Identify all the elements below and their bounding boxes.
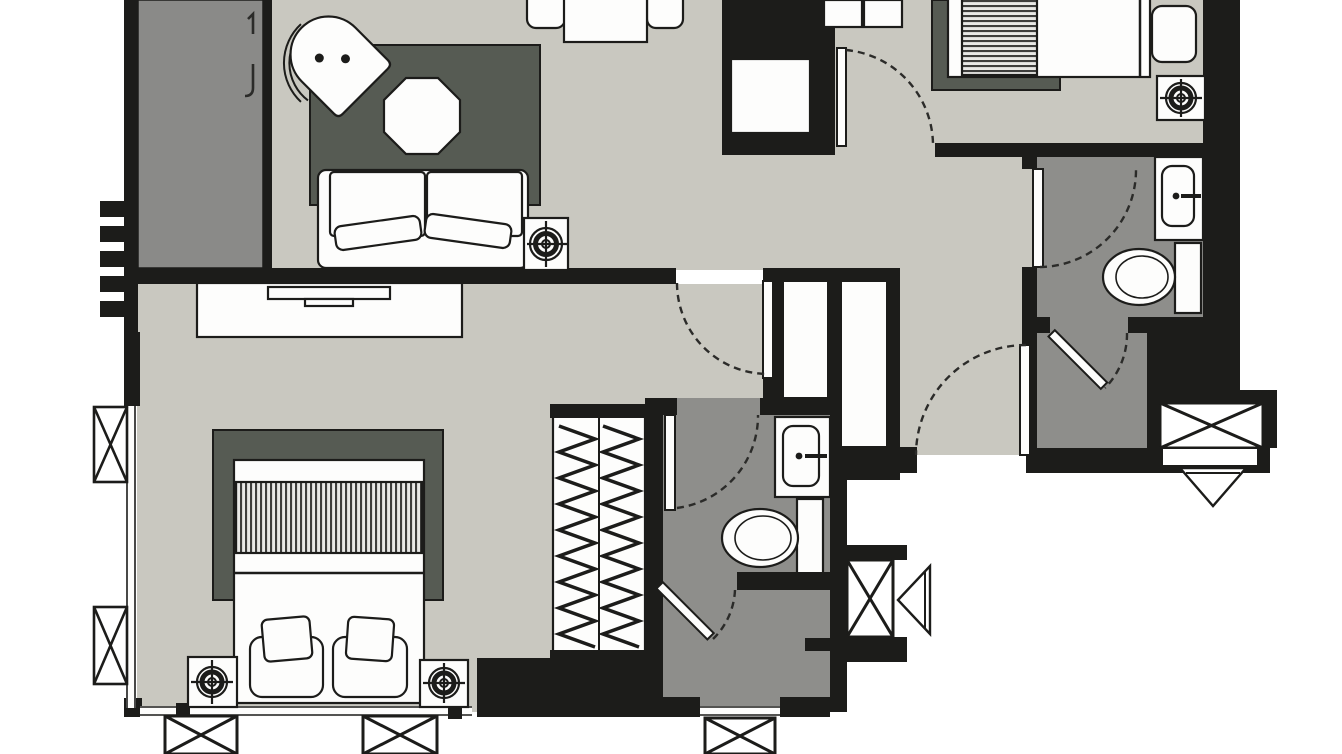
armchair	[1152, 6, 1196, 62]
closet-door-panel	[783, 281, 828, 398]
floor-plan	[0, 0, 1342, 754]
door-leaf-bathroom-second	[1033, 169, 1043, 267]
wall	[124, 268, 676, 284]
cabinet-door	[824, 0, 862, 27]
dining-chair-left	[527, 0, 565, 28]
window-x-box	[847, 560, 893, 637]
bathroom-main-sink	[775, 417, 830, 497]
sofa	[318, 170, 528, 268]
door-leaf-bedroom-second	[837, 48, 846, 146]
wall	[895, 447, 917, 473]
wall	[805, 638, 830, 651]
wall	[935, 143, 1207, 157]
octagon-side-table	[384, 78, 460, 154]
window-x-box	[94, 607, 127, 684]
wall	[1147, 390, 1277, 403]
wall	[263, 0, 272, 270]
ledge-slab	[1162, 448, 1258, 466]
flat-tv	[268, 287, 390, 299]
wall	[1037, 317, 1050, 333]
bathroom-second-sink	[1155, 157, 1203, 240]
wall	[847, 637, 907, 662]
window-x-box	[1160, 403, 1263, 448]
bed-headboard-stripes	[962, 0, 1037, 75]
wall	[477, 658, 663, 717]
kitchen-appliance	[731, 59, 810, 133]
double-bed	[234, 460, 424, 703]
dining-chair-right	[647, 0, 683, 28]
faucet-icon	[796, 453, 803, 460]
wall	[1203, 0, 1240, 320]
lamp-target-unit	[420, 660, 468, 707]
wardrobe	[553, 408, 645, 662]
wall	[124, 332, 140, 406]
closet-door-panel	[841, 281, 887, 447]
window-x-box	[94, 407, 127, 482]
bed-cushion	[346, 616, 395, 661]
wall	[124, 0, 138, 206]
door-leaf-entry	[1020, 345, 1030, 455]
wall	[830, 555, 847, 712]
wall	[1022, 157, 1037, 169]
wall	[1147, 403, 1160, 455]
wall	[737, 572, 833, 590]
lamp-target-unit	[524, 218, 568, 270]
window-x-box	[363, 716, 437, 754]
door-leaf-bedroom-main	[763, 281, 773, 378]
wall	[760, 398, 833, 415]
lamp-target-unit	[1157, 76, 1205, 120]
wall	[780, 697, 830, 717]
window-x-box	[165, 716, 237, 754]
faucet-icon	[1173, 193, 1180, 200]
window-vestibule	[700, 706, 780, 717]
wall	[550, 650, 648, 662]
tv-stand	[305, 299, 353, 306]
cabinet-door	[864, 0, 902, 27]
lamp-target-unit	[188, 657, 237, 707]
window-x-box	[705, 718, 775, 754]
closet-panel	[138, 0, 263, 268]
wall	[550, 404, 648, 418]
wall	[847, 545, 907, 560]
wall	[1128, 317, 1203, 333]
bed-cushion	[261, 616, 312, 662]
dining-table	[564, 0, 647, 42]
door-leaf-bathroom-main	[665, 415, 675, 510]
bed-headboard-stripes	[236, 482, 422, 553]
